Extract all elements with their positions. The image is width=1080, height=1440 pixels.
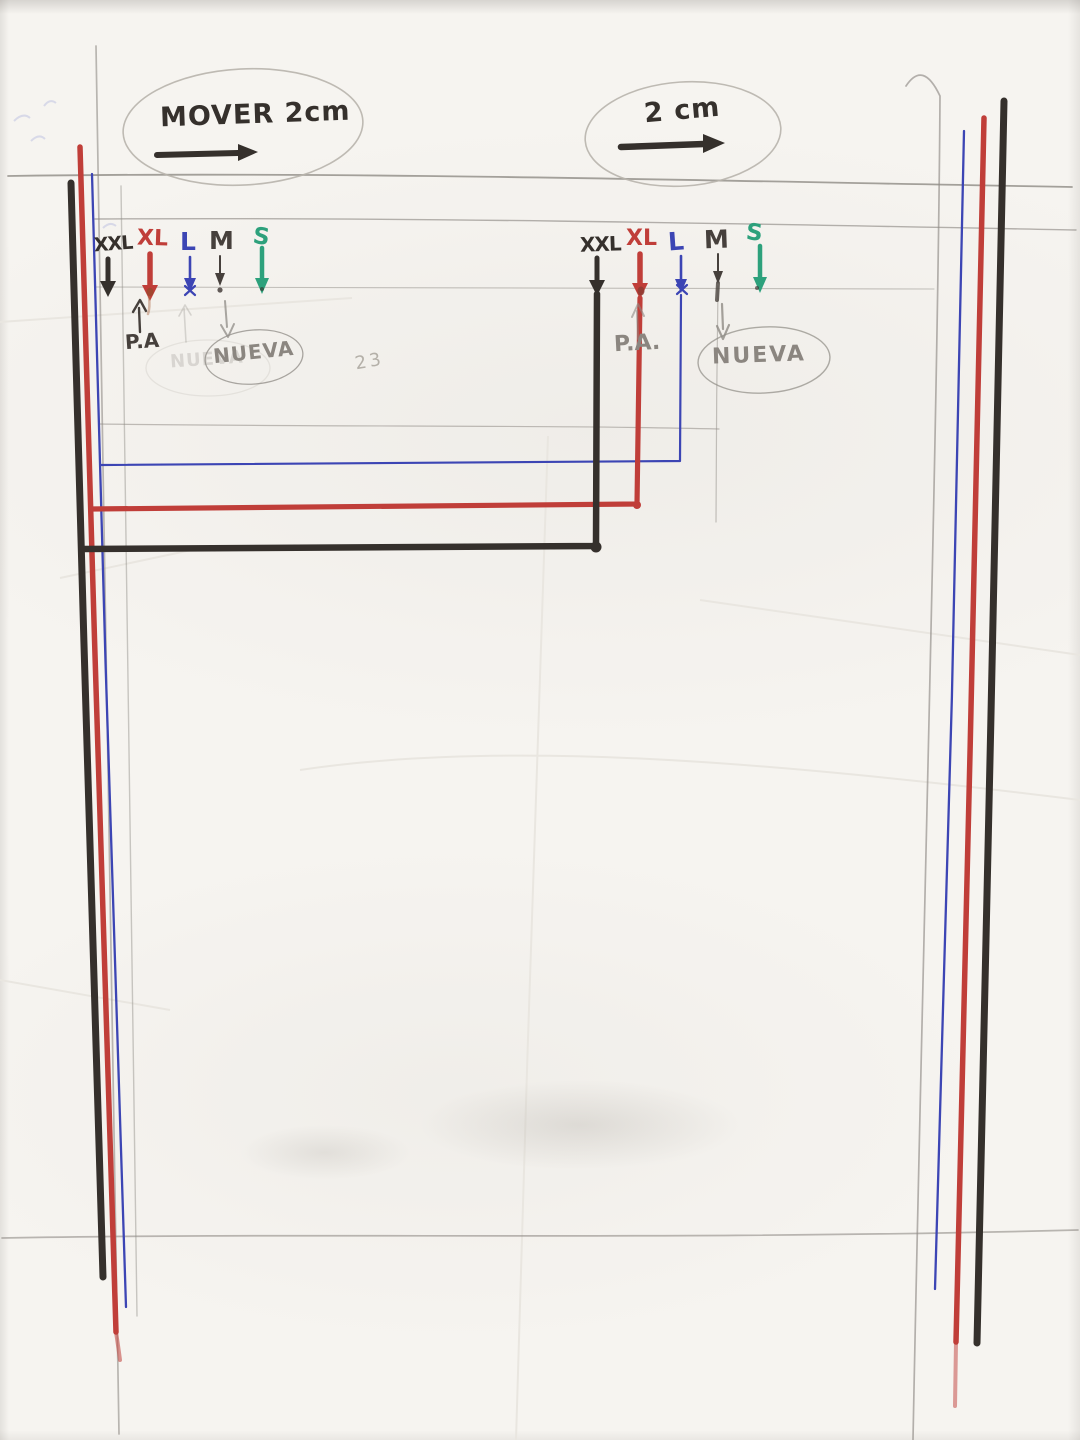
baseline-blob-dark xyxy=(717,283,718,300)
red-grade-line-right-tail xyxy=(955,1342,956,1406)
size-label-m-left: M xyxy=(209,228,234,253)
baseline-dot xyxy=(217,287,222,292)
red-step-line xyxy=(91,298,640,509)
move-arrow-right-shaft xyxy=(621,144,704,147)
move-arrow-left-head xyxy=(238,144,258,161)
red-grade-line-left-tail xyxy=(116,1332,120,1360)
pencil-number-23: 23 xyxy=(354,351,386,374)
note-mover-2cm: MOVER 2cm xyxy=(160,98,351,132)
size-label-s-left: S xyxy=(251,225,271,250)
baseline-blob-red xyxy=(147,288,154,296)
second-rule-line xyxy=(95,219,1076,230)
hip-guide-line xyxy=(99,424,719,429)
pattern-drawing-layer xyxy=(0,0,1080,1440)
m-arrow-left-head xyxy=(215,273,225,286)
pa-label-right: P.A. xyxy=(613,332,660,356)
pencil-guide-lines xyxy=(2,46,1078,1440)
crease-line xyxy=(516,436,548,1440)
right-margin-pencil-line xyxy=(906,75,940,1440)
move-arrow-left-shaft xyxy=(157,153,238,155)
blue-smudges xyxy=(14,101,116,228)
size-label-xxl-left: XXL xyxy=(93,234,133,256)
baseline-dot xyxy=(755,286,759,290)
smudge-mark xyxy=(31,136,45,141)
grade-step-lines xyxy=(82,294,681,553)
baseline-blob-red xyxy=(638,287,645,296)
crease-line xyxy=(0,980,170,1010)
black-step-corner-dot xyxy=(591,542,602,553)
size-label-xl-right: XL xyxy=(626,228,657,250)
crease-line xyxy=(0,298,352,322)
paper-creases xyxy=(0,298,1080,1440)
red-step-corner-dot xyxy=(633,501,641,509)
s-arrow-left-head xyxy=(255,278,269,294)
top-rule-line xyxy=(8,175,1072,187)
move-arrow-left xyxy=(157,144,258,161)
s-arrow-right-head xyxy=(753,277,767,293)
baseline-dot xyxy=(595,286,599,290)
red-smear xyxy=(148,297,149,314)
size-label-l-left: L xyxy=(180,229,196,254)
move-arrow-right xyxy=(621,134,725,153)
note-2cm: 2 cm xyxy=(643,94,721,128)
move-arrow-right-head xyxy=(703,134,725,153)
pa-up-arrow-left xyxy=(133,300,146,332)
smudge-mark xyxy=(14,116,30,121)
grade-lines-right xyxy=(935,101,1004,1406)
size-label-l-right: L xyxy=(667,228,685,254)
crease-line xyxy=(700,600,1080,655)
pa-label-left: P.A xyxy=(124,330,159,352)
size-label-m-right: M xyxy=(704,227,730,253)
baseline-dot xyxy=(260,287,264,291)
move-arrows xyxy=(157,134,725,161)
smudge-mark xyxy=(44,101,56,106)
crease-line xyxy=(300,756,1080,800)
nueva-label-right: NUEVA xyxy=(712,343,807,368)
paper-sheet: MOVER 2cm 2 cm XXL XL L M S XXL XL L M S… xyxy=(0,0,1080,1440)
baseline-dot xyxy=(106,287,110,291)
smudge-mark xyxy=(103,224,116,228)
m-size-pencil-line xyxy=(716,286,718,522)
left-inner-pencil-line xyxy=(121,186,137,1316)
note-bubble-right xyxy=(582,75,785,192)
size-label-xxl-right: XXL xyxy=(580,233,621,254)
size-label-s-right: S xyxy=(745,221,764,246)
size-label-xl-left: XL xyxy=(137,227,169,250)
grade-lines-left xyxy=(71,147,126,1360)
